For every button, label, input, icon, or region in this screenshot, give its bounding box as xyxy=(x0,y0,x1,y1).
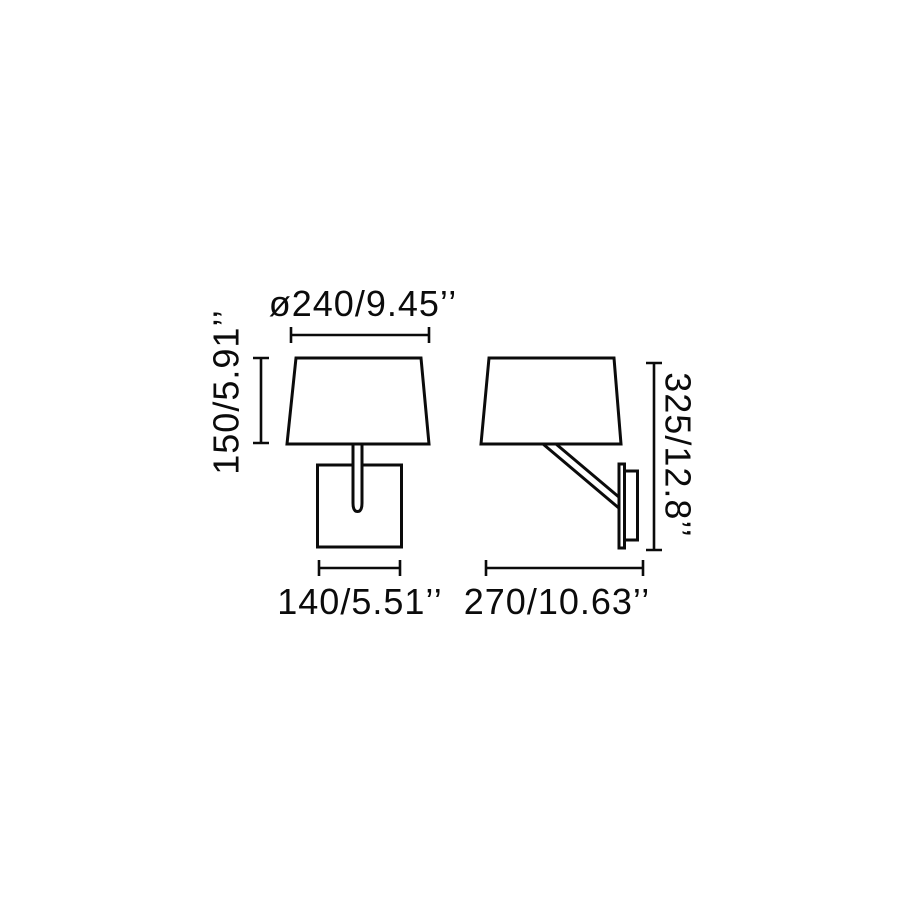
lamp-stem xyxy=(353,443,362,512)
lampshade-side xyxy=(481,358,621,444)
diagram-canvas: ø240/9.45’’ 150/5.91’’ 325/12.8’’ 140/5.… xyxy=(0,0,900,900)
wall-bracket-cover xyxy=(625,471,638,540)
dim-shade-diameter-line xyxy=(291,327,429,343)
side-view xyxy=(481,358,638,548)
wall-lamp-dimension-drawing: ø240/9.45’’ 150/5.91’’ 325/12.8’’ 140/5.… xyxy=(0,0,900,900)
dim-depth: 270/10.63’’ xyxy=(464,560,651,622)
dim-backplate-width: 140/5.51’’ xyxy=(277,560,442,622)
total-height-label: 325/12.8’’ xyxy=(658,372,699,537)
dim-backplate-width-line xyxy=(319,560,400,576)
lampshade-front xyxy=(287,358,429,444)
shade-height-label: 150/5.91’’ xyxy=(206,309,247,474)
lamp-arm xyxy=(543,444,620,509)
dim-total-height: 325/12.8’’ xyxy=(646,363,699,550)
shade-diameter-label: ø240/9.45’’ xyxy=(269,283,457,324)
depth-label: 270/10.63’’ xyxy=(464,581,651,622)
dim-shade-diameter: ø240/9.45’’ xyxy=(269,283,457,343)
dim-shade-height: 150/5.91’’ xyxy=(206,309,270,474)
backplate-width-label: 140/5.51’’ xyxy=(277,581,442,622)
dim-depth-line xyxy=(486,560,643,576)
front-view xyxy=(287,358,429,547)
dim-shade-height-line xyxy=(253,358,269,443)
